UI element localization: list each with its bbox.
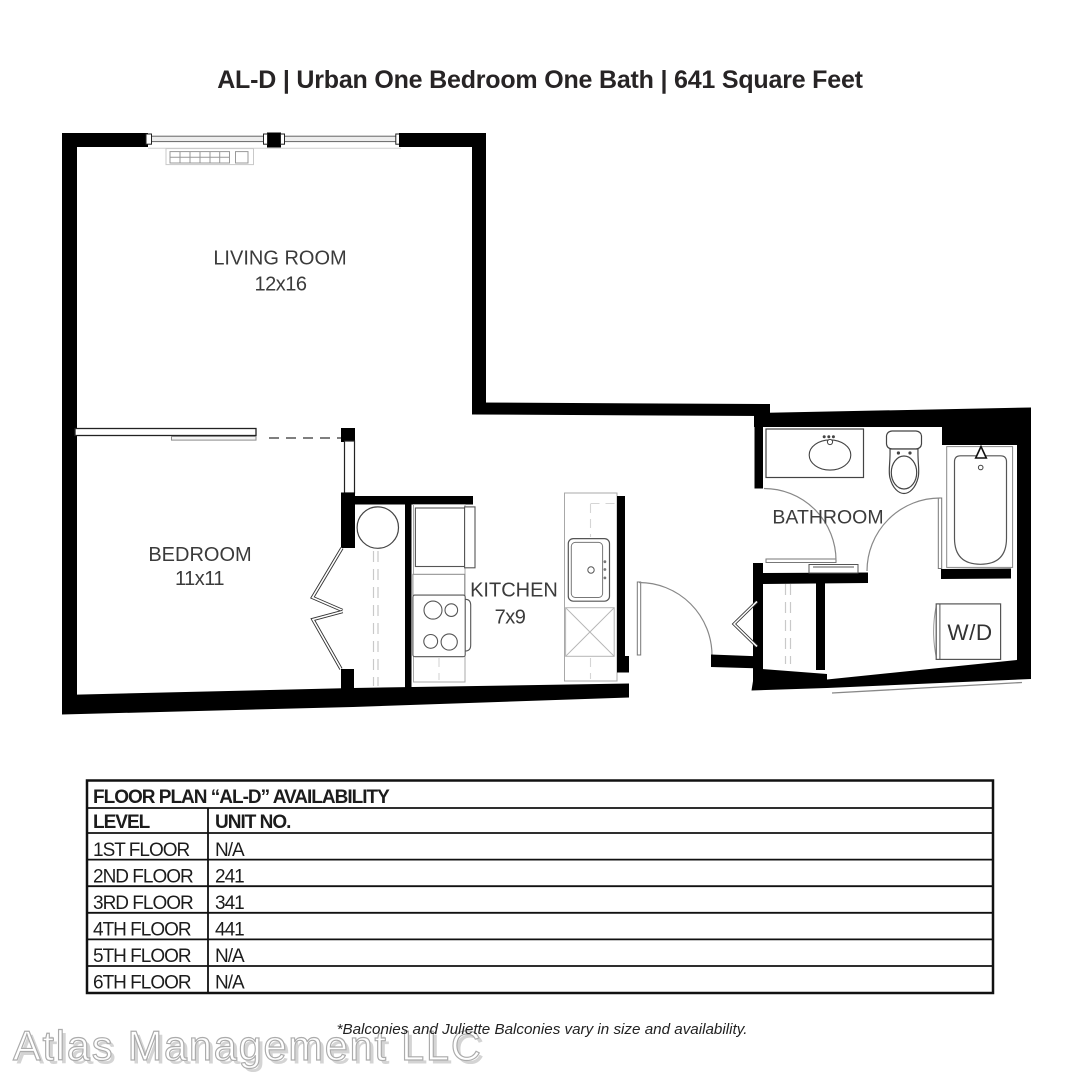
svg-text:W/D: W/D	[947, 620, 992, 645]
svg-text:UNIT NO.: UNIT NO.	[215, 812, 290, 833]
svg-text:5TH FLOOR: 5TH FLOOR	[93, 946, 191, 967]
svg-text:BATHROOM: BATHROOM	[772, 507, 883, 529]
svg-text:3RD FLOOR: 3RD FLOOR	[93, 893, 193, 914]
svg-text:BEDROOM: BEDROOM	[148, 544, 251, 566]
svg-text:KITCHEN: KITCHEN	[470, 580, 558, 602]
svg-text:N/A: N/A	[215, 840, 245, 861]
svg-text:LEVEL: LEVEL	[93, 812, 151, 833]
svg-text:6TH FLOOR: 6TH FLOOR	[93, 973, 191, 994]
svg-text:N/A: N/A	[215, 946, 245, 967]
svg-text:1ST FLOOR: 1ST FLOOR	[93, 840, 190, 861]
svg-text:AL-D | Urban One Bedroom One B: AL-D | Urban One Bedroom One Bath | 641 …	[217, 66, 863, 94]
svg-text:FLOOR PLAN “AL-D” AVAILABILITY: FLOOR PLAN “AL-D” AVAILABILITY	[93, 787, 390, 808]
svg-text:LIVING ROOM: LIVING ROOM	[213, 248, 346, 270]
svg-text:7x9: 7x9	[495, 607, 526, 629]
svg-text:4TH FLOOR: 4TH FLOOR	[93, 920, 191, 941]
svg-text:11x11: 11x11	[175, 568, 224, 590]
svg-text:441: 441	[215, 920, 244, 941]
svg-text:241: 241	[215, 867, 244, 888]
svg-text:N/A: N/A	[215, 973, 245, 994]
svg-text:*Balconies and Juliette Balcon: *Balconies and Juliette Balconies vary i…	[337, 1021, 748, 1038]
svg-text:12x16: 12x16	[255, 274, 307, 296]
svg-text:2ND FLOOR: 2ND FLOOR	[93, 867, 193, 888]
svg-text:341: 341	[215, 893, 244, 914]
